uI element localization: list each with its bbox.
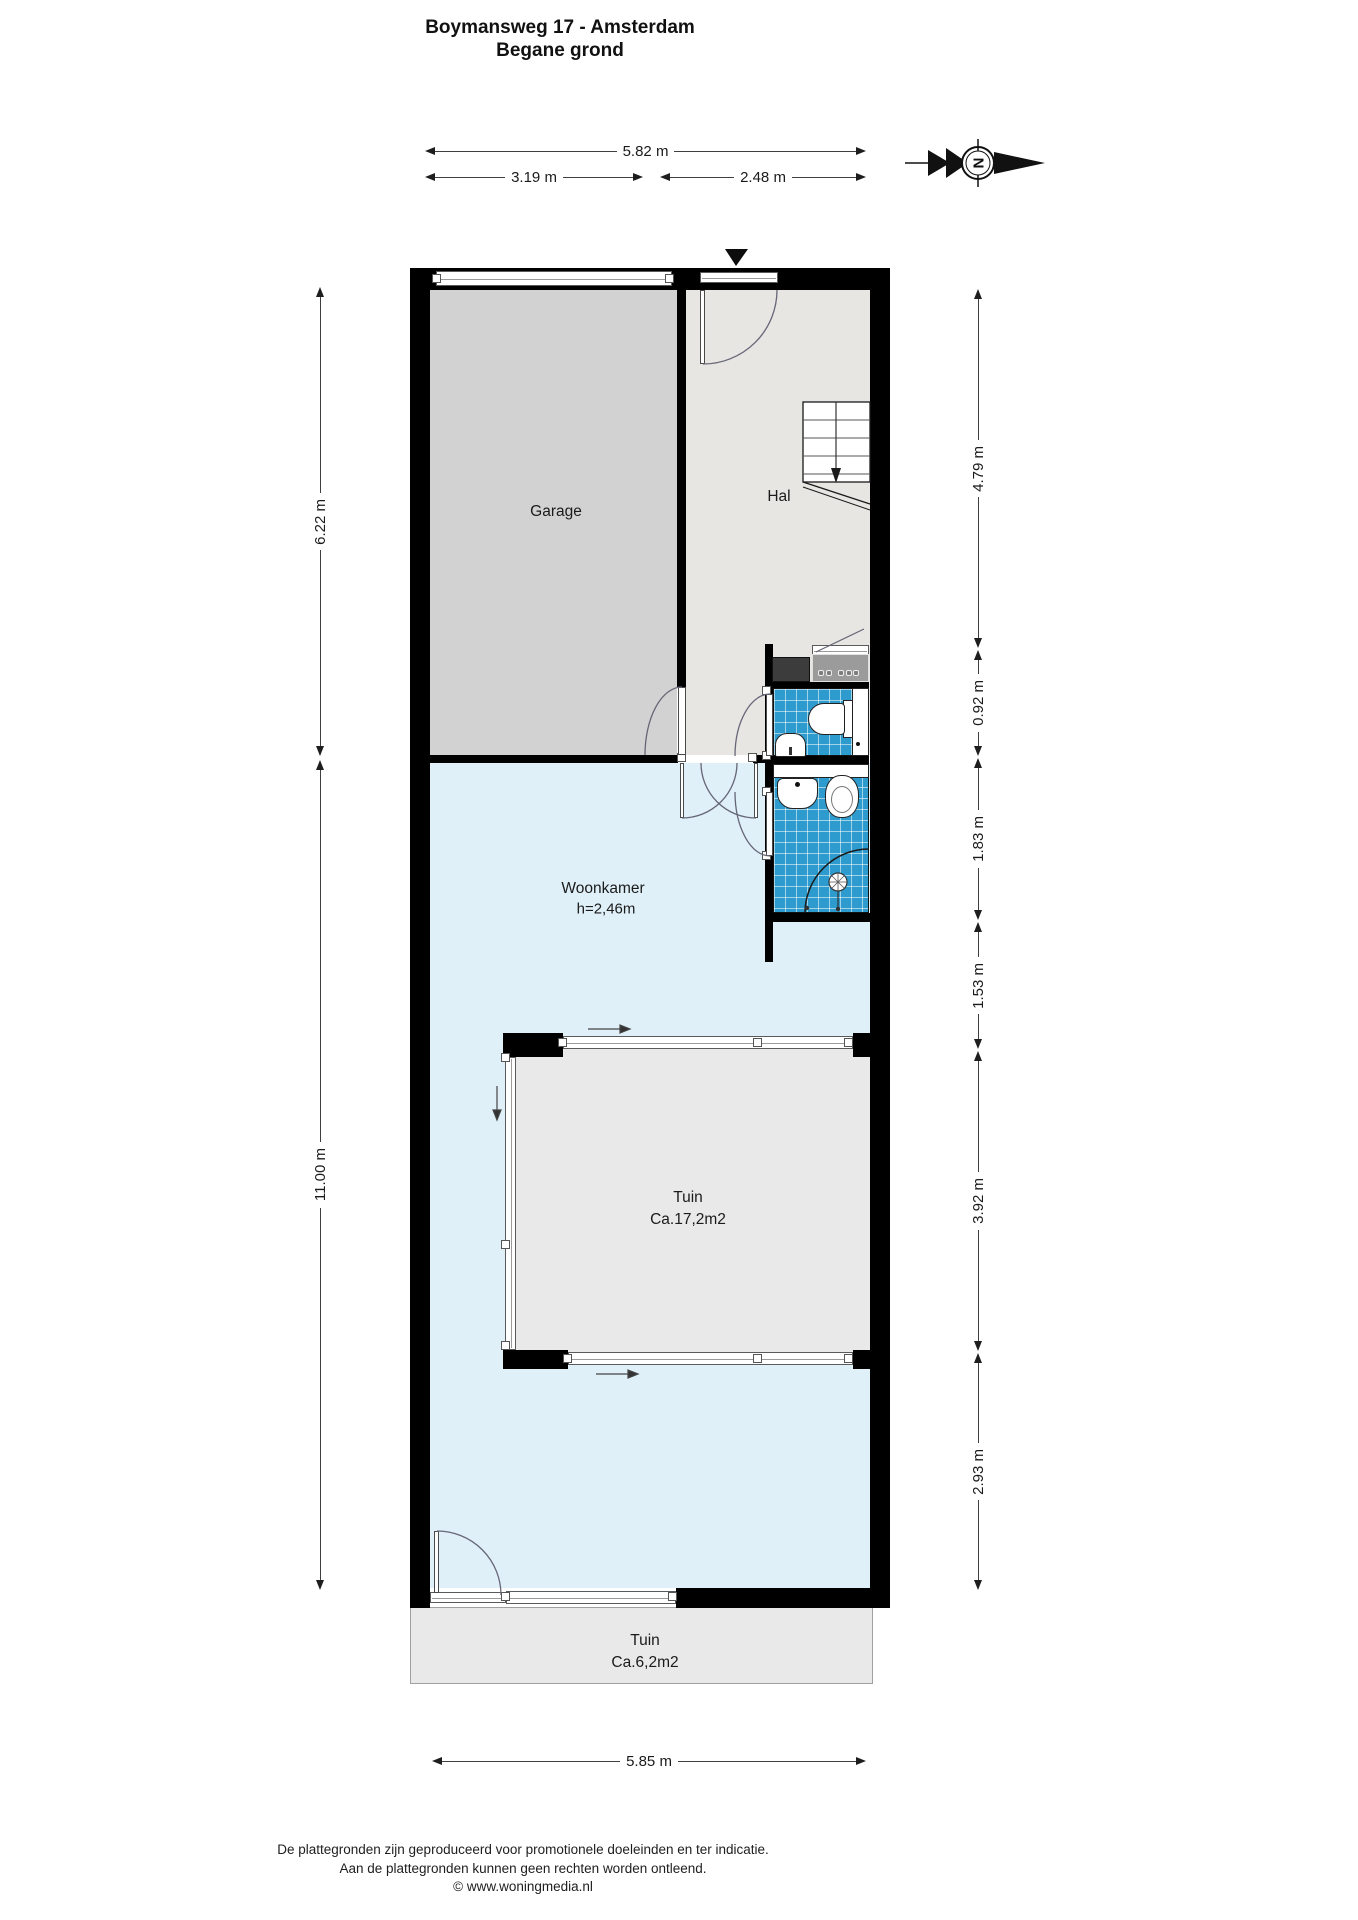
arrow-up-icon xyxy=(974,650,982,660)
arrow-up-icon xyxy=(316,760,324,770)
arrow-down-icon xyxy=(316,1580,324,1590)
slide-arrow-down-icon xyxy=(493,1110,501,1120)
compass-icon: N xyxy=(905,139,1045,187)
arrow-left-icon xyxy=(660,173,670,181)
dim-left-bottom: 11.00 m xyxy=(312,760,328,1590)
woonkamer-label: Woonkamer xyxy=(561,880,644,898)
disclaimer-line-1: De plattegronden zijn geproduceerd voor … xyxy=(277,1841,769,1860)
garden-label: Tuin xyxy=(630,1632,660,1650)
arrow-up-icon xyxy=(974,1051,982,1061)
entrance-arrow-icon xyxy=(725,249,748,266)
wc-door-arc xyxy=(735,694,770,756)
dim-right-3: 1.83 m xyxy=(970,758,986,920)
north-arrow-icon xyxy=(994,152,1045,174)
arrow-down-icon xyxy=(974,910,982,920)
bathroom-door-arc xyxy=(735,792,770,856)
slide-arrow-right-icon xyxy=(620,1025,630,1033)
double-door-arc-right xyxy=(701,763,756,818)
arrow-up-icon xyxy=(316,287,324,297)
arrow-up-icon xyxy=(974,922,982,932)
arrow-down-icon xyxy=(974,1580,982,1590)
arrow-down-icon xyxy=(974,746,982,756)
arrow-left-icon xyxy=(425,173,435,181)
front-door-arc xyxy=(703,290,777,364)
patio-label: Tuin xyxy=(673,1189,703,1207)
arrow-down-icon xyxy=(316,746,324,756)
arrow-left-icon xyxy=(425,147,435,155)
double-door-arc-left xyxy=(682,763,737,818)
arrow-right-icon xyxy=(856,1757,866,1765)
dim-right-6: 2.93 m xyxy=(970,1353,986,1590)
arrow-down-icon xyxy=(974,1341,982,1351)
shower xyxy=(805,849,869,913)
floorplan-page: Boymansweg 17 - Amsterdam Begane grond xyxy=(0,0,1358,1920)
arrow-up-icon xyxy=(974,289,982,299)
plan-linework: N xyxy=(0,0,1358,1920)
arrow-right-icon xyxy=(856,147,866,155)
dim-right-4: 1.53 m xyxy=(970,922,986,1049)
dim-top-right: 2.48 m xyxy=(660,169,866,185)
shower-drain xyxy=(805,906,809,910)
dim-top-total: 5.82 m xyxy=(425,143,866,159)
compass-north-letter: N xyxy=(970,158,987,169)
slide-arrow-right-icon xyxy=(628,1370,638,1378)
sliding-direction-arrows xyxy=(493,1025,638,1378)
dim-right-2: 0.92 m xyxy=(970,650,986,756)
garden-area-label: Ca.6,2m2 xyxy=(611,1654,678,1672)
garage-label: Garage xyxy=(530,503,582,521)
arrow-right-icon xyxy=(633,173,643,181)
hal-label: Hal xyxy=(767,488,790,506)
patio-area-label: Ca.17,2m2 xyxy=(650,1211,726,1229)
dim-left-top: 6.22 m xyxy=(312,287,328,756)
copyright: © www.woningmedia.nl xyxy=(277,1878,769,1897)
arrow-up-icon xyxy=(974,758,982,768)
dim-bottom-total: 5.85 m xyxy=(432,1753,866,1769)
arrow-down-icon xyxy=(974,1039,982,1049)
open-window-pane xyxy=(816,629,864,652)
garage-door-arc xyxy=(645,687,682,755)
woonkamer-ceiling-height: h=2,46m xyxy=(577,901,636,918)
disclaimer-line-2: Aan de plattegronden kunnen geen rechten… xyxy=(277,1860,769,1879)
dim-right-1: 4.79 m xyxy=(970,289,986,648)
staircase xyxy=(803,402,870,510)
dim-top-left: 3.19 m xyxy=(425,169,643,185)
arrow-up-icon xyxy=(974,1353,982,1363)
arrow-right-icon xyxy=(856,173,866,181)
arrow-down-icon xyxy=(974,638,982,648)
garden-door-arc xyxy=(437,1531,501,1595)
disclaimer: De plattegronden zijn geproduceerd voor … xyxy=(277,1841,769,1897)
dim-right-5: 3.92 m xyxy=(970,1051,986,1351)
arrow-left-icon xyxy=(432,1757,442,1765)
